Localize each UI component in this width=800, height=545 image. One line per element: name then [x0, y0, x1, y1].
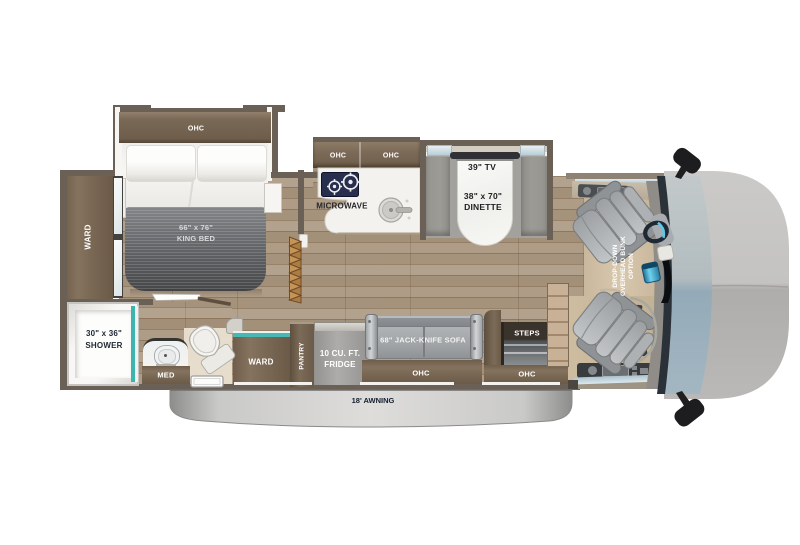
svg-text:18' AWNING: 18' AWNING [352, 396, 395, 405]
